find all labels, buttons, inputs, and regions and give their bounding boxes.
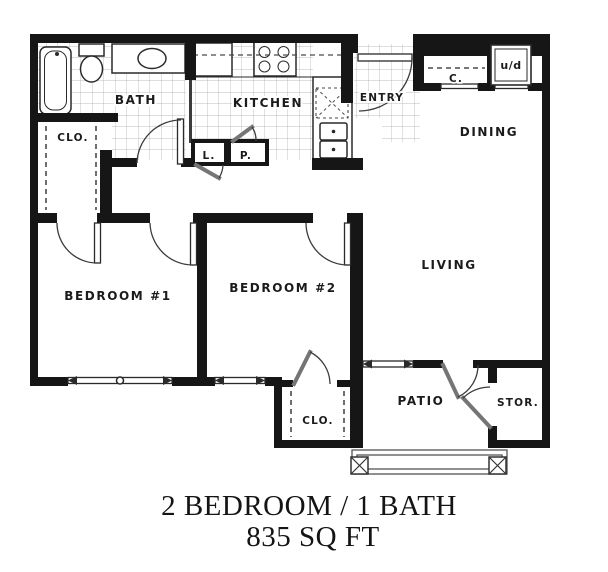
room-label-pantry: P. [240, 150, 252, 162]
room-label-bedroom2: BEDROOM #2 [229, 281, 336, 295]
room-label-bedroom1: BEDROOM #1 [64, 289, 171, 303]
patio-rail-inner [357, 455, 502, 469]
vanity-sink [112, 44, 185, 73]
room-label-kitchen: KITCHEN [233, 96, 303, 110]
bedroom2-door [306, 223, 351, 265]
patio-rail-outer [352, 450, 507, 474]
caption-line1: 2 BEDROOM / 1 BATH [161, 490, 457, 522]
room-label-dining: DINING [460, 125, 518, 139]
patio-post-left [351, 457, 368, 474]
bathtub [40, 47, 71, 114]
caption-line2: 835 SQ FT [246, 521, 379, 553]
caption: 2 BEDROOM / 1 BATH 835 SQ FT [161, 490, 457, 553]
bedroom1-window [68, 376, 172, 385]
storage-door [463, 387, 490, 427]
bath-tile-floor-lower [112, 115, 186, 160]
living-sliding-window [363, 360, 413, 369]
room-label-linen: L. [202, 150, 215, 162]
room-label-coat-closet: C. [449, 73, 463, 85]
room-label-bedroom2-closet: CLO. [302, 415, 334, 427]
floor-plan-page: BATH KITCHEN ENTRY DINING LIVING BEDROOM… [0, 0, 608, 572]
room-label-living: LIVING [421, 258, 476, 272]
hall-closet-door [57, 223, 101, 263]
room-label-washer-dryer: u/d [500, 59, 521, 72]
toilet [79, 44, 104, 82]
refrigerator [192, 43, 232, 76]
bedroom2-window [215, 376, 265, 385]
patio-door [443, 365, 478, 397]
room-label-storage: STOR. [497, 397, 539, 409]
patio-post-right [489, 457, 506, 474]
kitchen-double-sink [320, 123, 347, 158]
floor-plan-drawing: BATH KITCHEN ENTRY DINING LIVING BEDROOM… [0, 0, 608, 572]
stove [254, 42, 296, 76]
patio-structure [351, 450, 507, 474]
room-label-patio: PATIO [398, 394, 445, 408]
bedroom2-closet-door [294, 352, 330, 384]
room-label-hall-closet: CLO. [57, 132, 89, 144]
room-label-entry: ENTRY [360, 92, 404, 104]
linen-closet-door [196, 165, 223, 178]
room-label-bath: BATH [115, 93, 157, 107]
bedroom1-door [150, 223, 197, 265]
entry-tile-floor-lower [382, 118, 420, 142]
